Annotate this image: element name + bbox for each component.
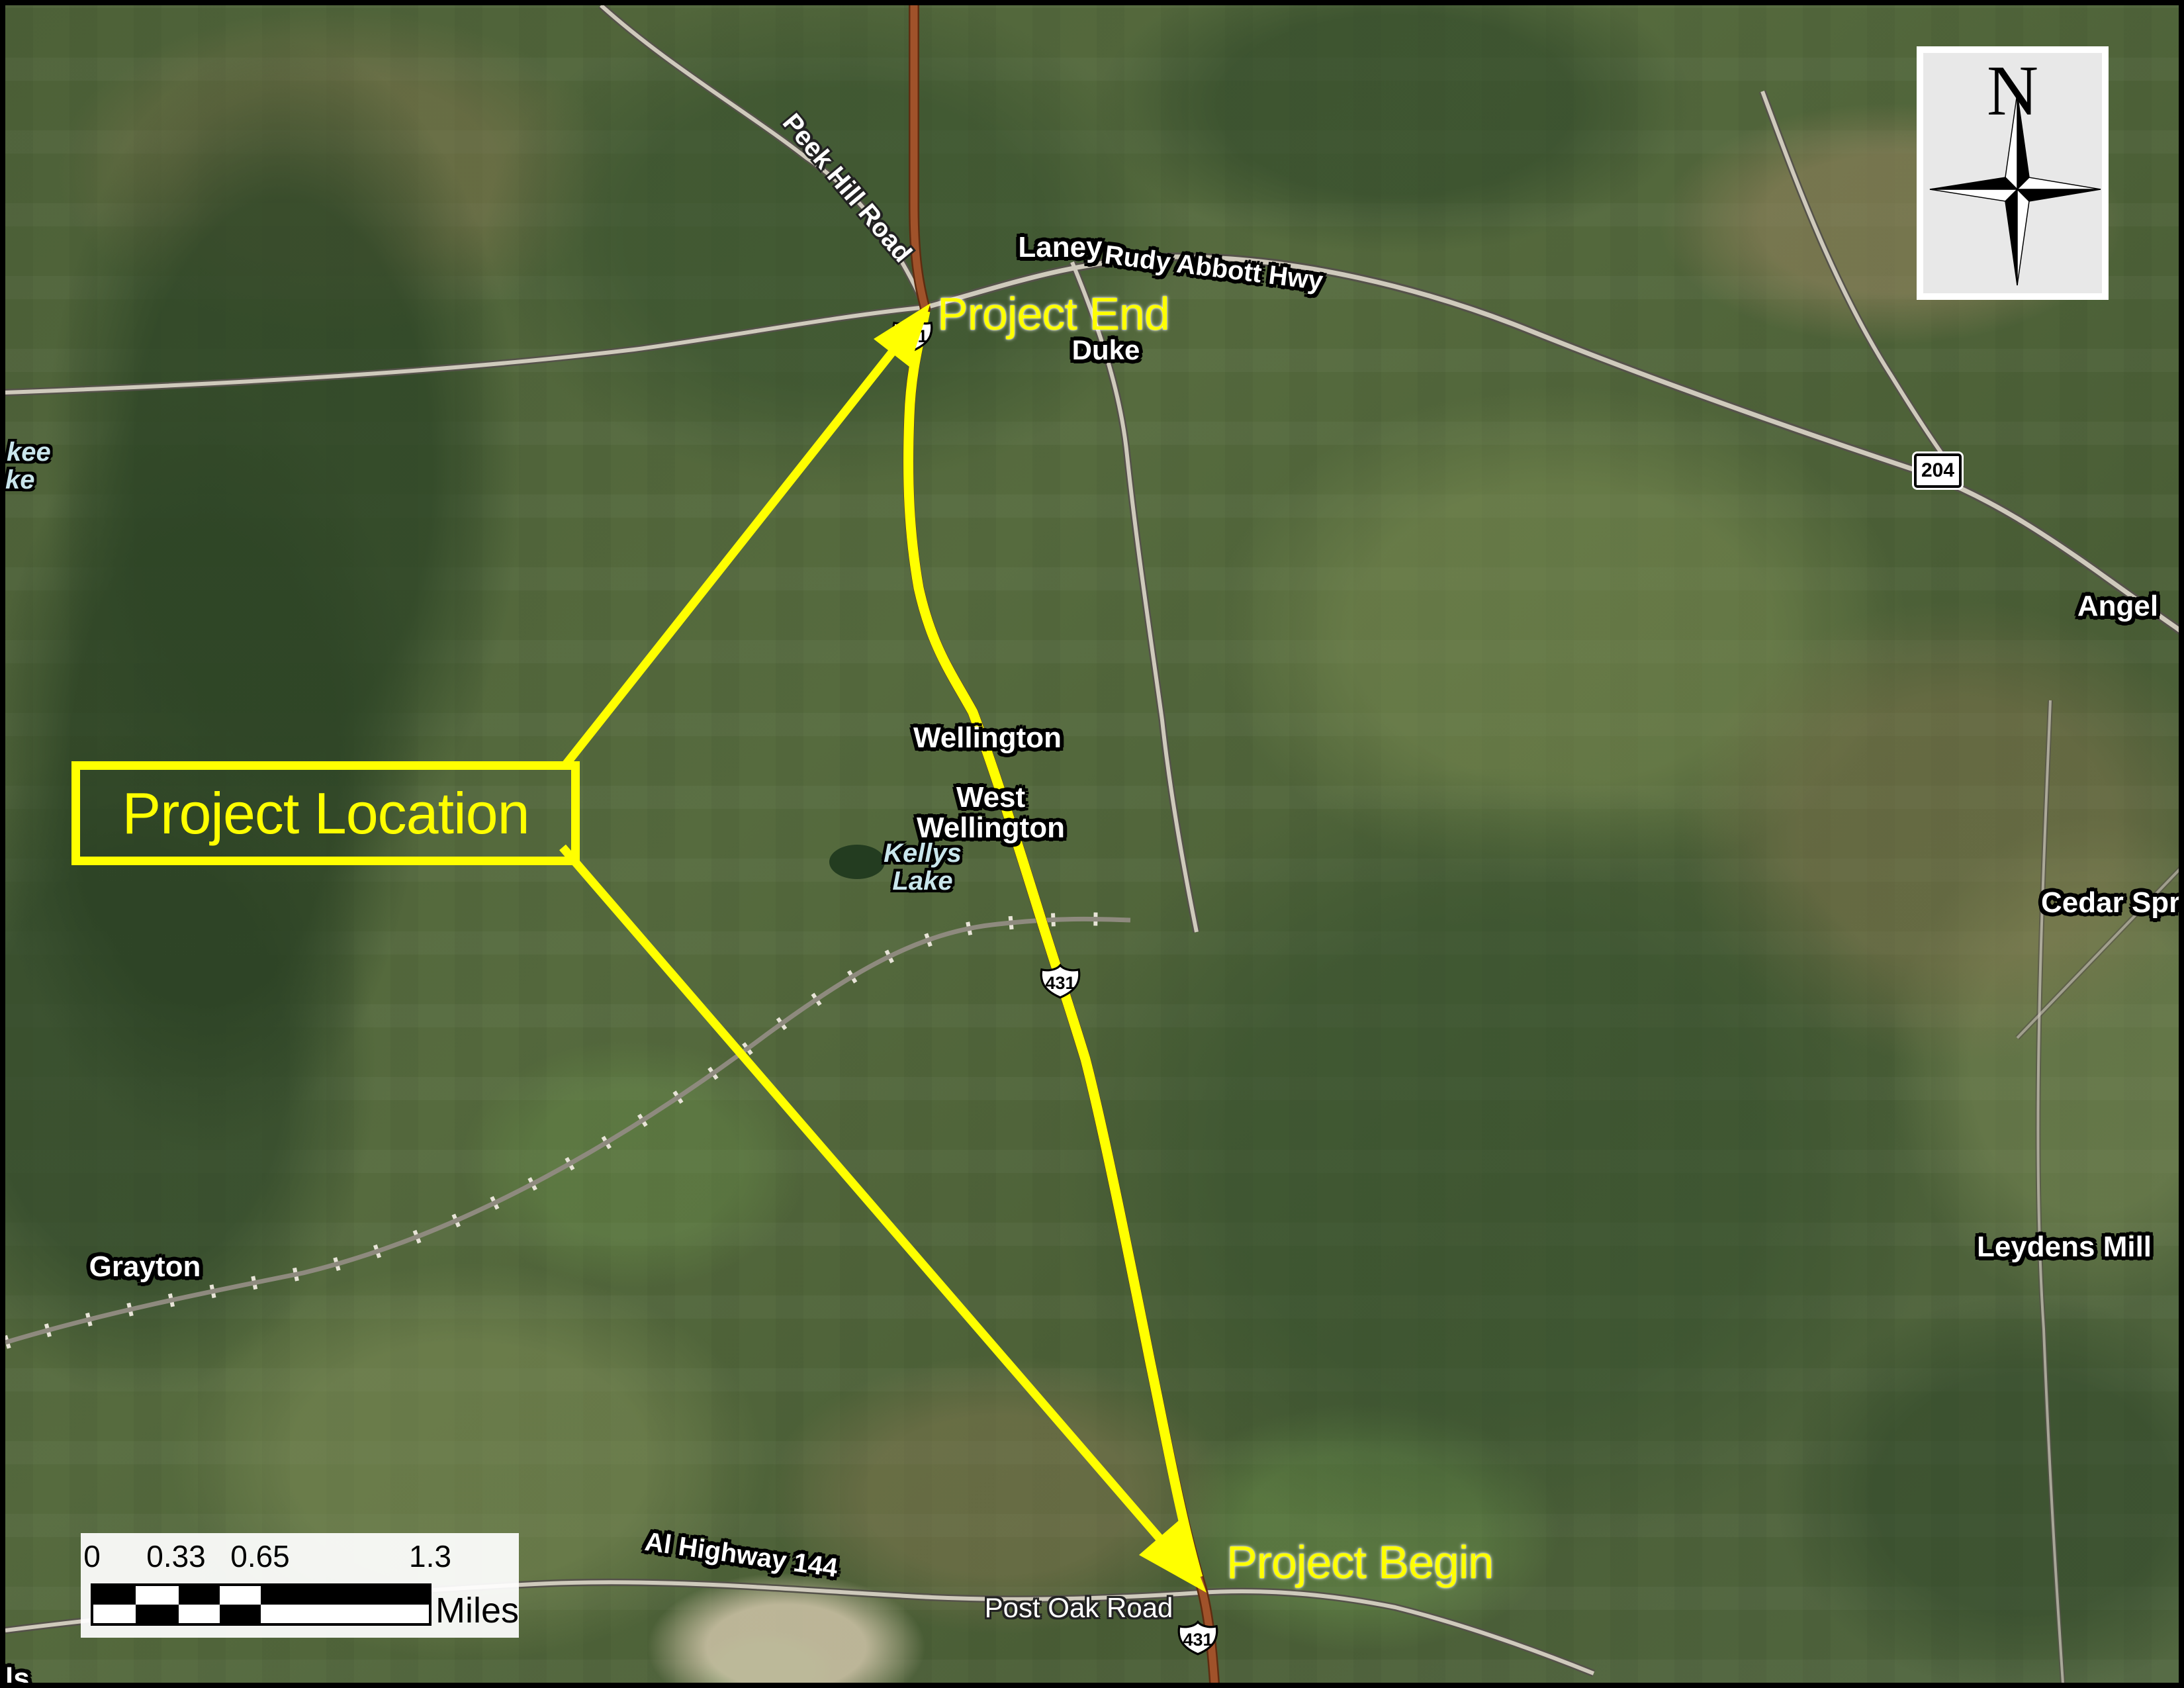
project-end-label: Project End (937, 287, 1169, 340)
place-label-duke: Duke (1072, 336, 1140, 365)
place-label-fragment-ls: ls (5, 1664, 30, 1688)
place-label-west-wellington: West Wellington (882, 782, 1100, 843)
place-label-angel: Angel (2077, 591, 2158, 622)
scale-unit-label: Miles (435, 1590, 519, 1631)
project-location-label: Project Location (122, 780, 529, 847)
place-label-cedar-springs: Cedar Spr (2041, 888, 2180, 918)
leader-line-project-end (565, 352, 892, 765)
road-label-post-oak: Post Oak Road (985, 1593, 1173, 1622)
map-canvas[interactable]: 431 431 431 204 Project Location Project… (0, 0, 2184, 1688)
leader-line-project-begin (563, 847, 1160, 1539)
scale-tick-033: 0.33 (146, 1538, 206, 1574)
scale-bar-checker (91, 1583, 432, 1626)
compass-rose-icon (1923, 53, 2102, 293)
place-label-grayton: Grayton (89, 1252, 201, 1282)
project-begin-label: Project Begin (1226, 1536, 1493, 1589)
project-location-callout: Project Location (71, 761, 580, 865)
scale-bar-panel: 0 0.33 0.65 1.3 Miles (81, 1533, 519, 1638)
place-label-wellington: Wellington (913, 723, 1062, 753)
place-label-leydens-mill: Leydens Mill (1977, 1232, 2152, 1262)
arrowhead-project-end (874, 303, 931, 367)
scale-tick-065: 0.65 (230, 1538, 290, 1574)
water-label-kellys-lake: Kellys Lake (853, 839, 992, 895)
place-label-laney: Laney (1018, 232, 1102, 263)
north-arrow-panel: N (1917, 46, 2109, 300)
water-label-fragment-ke: ke (5, 466, 35, 494)
scale-tick-0: 0 (83, 1538, 101, 1574)
scale-tick-13: 1.3 (409, 1538, 451, 1574)
water-label-fragment-kee: kee (7, 438, 51, 466)
